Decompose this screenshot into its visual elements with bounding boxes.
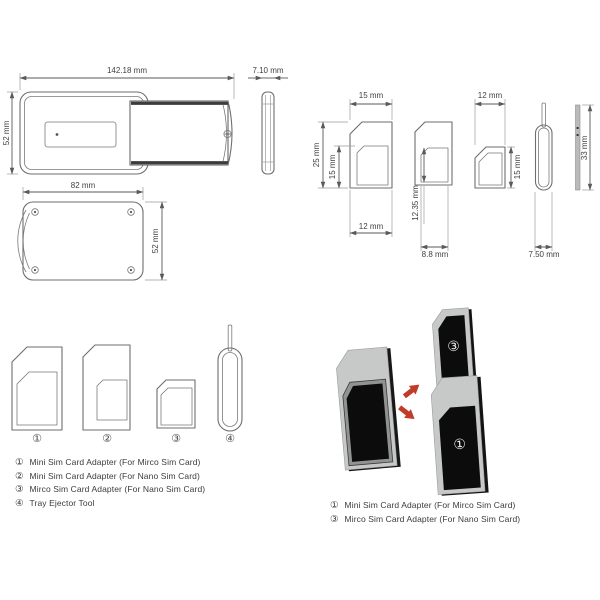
dimension-front-width: 142.18 mm <box>20 66 234 99</box>
items-legend-row-2: ② Mini Sim Card Adapter (For Nano Sim Ca… <box>15 470 205 484</box>
dimension-ejector-width: 7.50 mm <box>528 192 559 259</box>
items-legend-row-1: ① Mini Sim Card Adapter (For Mirco Sim C… <box>15 456 205 470</box>
legend-marker: ① <box>330 500 339 513</box>
dimension-micro-top: 12 mm <box>475 91 505 145</box>
mini-nano-adapter-drawing <box>415 122 452 185</box>
ejector-width-label: 7.50 mm <box>528 250 559 259</box>
tray-holder-back-view <box>18 202 143 280</box>
tray-holder-front-view <box>20 92 232 174</box>
item-4-marker: ④ <box>225 432 235 445</box>
items-legend: ① Mini Sim Card Adapter (For Mirco Sim C… <box>15 456 205 510</box>
dimension-micro-right: 15 mm <box>507 147 522 188</box>
legend-label: Mini Sim Card Adapter (For Mirco Sim Car… <box>345 499 516 512</box>
item-3-marker: ③ <box>171 432 181 445</box>
recess-dot <box>56 133 59 136</box>
mini-top-label: 15 mm <box>359 91 384 100</box>
nano-width-label: 8.8 mm <box>422 250 449 259</box>
legend-marker: ③ <box>15 484 24 497</box>
legend-label: Mini Sim Card Adapter (For Mirco Sim Car… <box>30 456 201 469</box>
usage-card-mini-marker: ① <box>453 436 467 453</box>
front-width-label: 142.18 mm <box>107 66 147 75</box>
micro-top-label: 12 mm <box>478 91 503 100</box>
item-2-marker: ② <box>102 432 112 445</box>
legend-marker: ④ <box>15 498 24 511</box>
legend-marker: ③ <box>330 514 339 527</box>
mini-inner-label: 15 mm <box>328 154 337 179</box>
side-width-label: 7.10 mm <box>252 66 283 75</box>
ejector-length-label: 33 mm <box>580 135 589 160</box>
legend-label: Mirco Sim Card Adapter (For Nano Sim Car… <box>345 513 521 526</box>
back-height-label: 52 mm <box>151 228 160 253</box>
usage-legend: ① Mini Sim Card Adapter (For Mirco Sim C… <box>330 499 520 526</box>
corner-screws <box>32 209 135 274</box>
front-height-label: 52 mm <box>2 120 11 145</box>
item-3-outline <box>157 380 195 428</box>
items-legend-row-4: ④ Tray Ejector Tool <box>15 497 205 511</box>
items-legend-row-3: ③ Mirco Sim Card Adapter (For Nano Sim C… <box>15 483 205 497</box>
dimension-back-height: 52 mm <box>145 202 167 280</box>
usage-card-micro: ③ <box>431 308 476 387</box>
product-diagram-page: 142.18 mm 7.10 mm 52 mm 82 mm <box>0 0 600 600</box>
usage-legend-row-1: ① Mini Sim Card Adapter (For Mirco Sim C… <box>330 499 520 513</box>
transfer-arrow-down <box>396 403 418 423</box>
dimension-nano-width: 8.8 mm <box>421 186 449 259</box>
legend-marker: ② <box>15 471 24 484</box>
usage-card-mini: ① <box>430 375 489 496</box>
legend-label: Mirco Sim Card Adapter (For Nano Sim Car… <box>30 483 206 496</box>
dimension-front-height: 52 mm <box>2 92 18 174</box>
dimension-side-width: 7.10 mm <box>248 66 288 78</box>
item-1-outline <box>12 347 62 430</box>
micro-right-label: 15 mm <box>513 154 522 179</box>
item-2-outline <box>83 345 130 430</box>
sim-tray <box>130 101 232 165</box>
usage-legend-row-2: ③ Mirco Sim Card Adapter (For Nano Sim C… <box>330 513 520 527</box>
legend-label: Tray Ejector Tool <box>30 497 95 510</box>
dimension-mini-inner: 15 mm <box>328 146 355 188</box>
transfer-arrow-up <box>401 380 423 400</box>
dimension-back-width: 82 mm <box>23 181 143 200</box>
back-width-label: 82 mm <box>71 181 96 190</box>
dimension-ejector-length: 33 mm <box>580 105 594 190</box>
micro-adapter-drawing <box>475 147 505 188</box>
tray-holder-side-view <box>262 92 274 174</box>
ejector-tool-drawing <box>536 103 553 190</box>
dimension-nano-height: 12.35 mm <box>411 148 424 224</box>
item-1-marker: ① <box>32 432 42 445</box>
usage-left-assembly <box>335 347 401 472</box>
mini-adapter-drawing <box>350 122 392 188</box>
legend-marker: ① <box>15 457 24 470</box>
nano-height-label: 12.35 mm <box>411 185 420 221</box>
dimension-mini-top: 15 mm <box>350 91 392 120</box>
mini-left-label: 25 mm <box>312 142 321 167</box>
item-4-outline <box>218 325 242 431</box>
legend-label: Mini Sim Card Adapter (For Nano Sim Card… <box>30 470 200 483</box>
mini-bottom-label: 12 mm <box>359 222 384 231</box>
dimension-mini-bottom: 12 mm <box>350 190 392 237</box>
usage-card-micro-marker: ③ <box>447 339 461 356</box>
